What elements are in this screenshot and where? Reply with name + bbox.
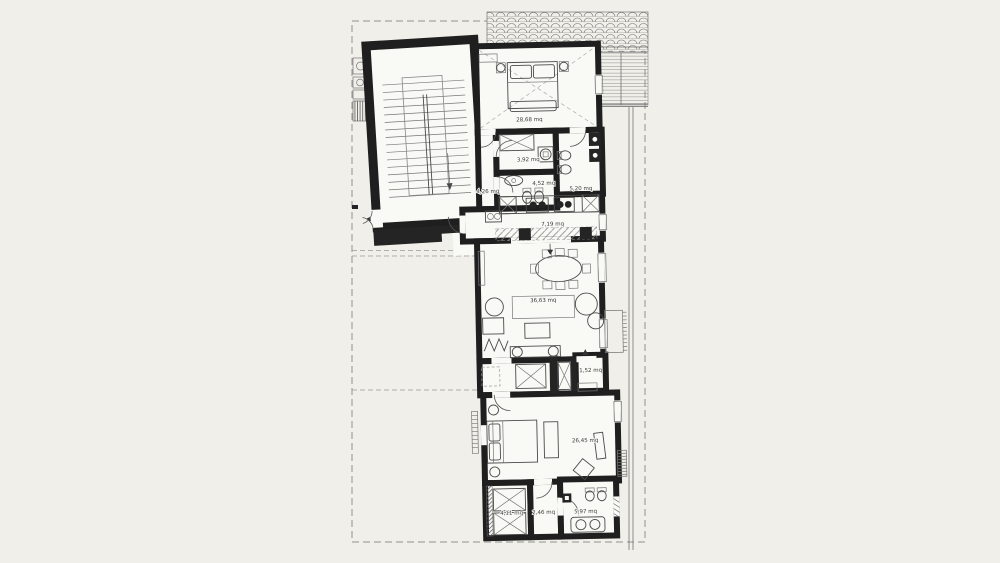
area-label-bedroom-main: 28,68 mq bbox=[516, 117, 542, 124]
floor-plan-drawing: 28,68 mq 3,92 mq 4, bbox=[0, 0, 1000, 563]
area-label-corridor: 2,46 mq bbox=[532, 510, 555, 516]
area-label-bathroom-wardrobe: 3,92 mq bbox=[517, 157, 540, 163]
threshold-mark bbox=[352, 205, 358, 209]
wall-hatch bbox=[486, 486, 493, 536]
area-label-wardrobe-2: 4,11 mq bbox=[500, 510, 523, 516]
room-bathroom-3 bbox=[560, 478, 617, 536]
area-label-kitchen: 7,19 mq bbox=[541, 221, 564, 227]
area-label-living: 36,63 mq bbox=[530, 298, 556, 305]
area-label-bathroom-3: 5,97 mq bbox=[574, 509, 597, 515]
room-bedroom-2 bbox=[483, 392, 619, 483]
passage-hatch-band bbox=[496, 227, 597, 241]
area-label-bedroom-2: 26,45 mq bbox=[572, 438, 598, 445]
area-label-bathroom-1: 4,52 mq bbox=[532, 181, 555, 187]
area-label-closet: 1,52 mq bbox=[579, 368, 602, 374]
floor-plan-page: 28,68 mq 3,92 mq 4, bbox=[0, 0, 1000, 563]
area-label-bathroom-2: 5,20 mq bbox=[569, 186, 592, 192]
area-label-hallway: 4,26 mq bbox=[476, 189, 499, 195]
